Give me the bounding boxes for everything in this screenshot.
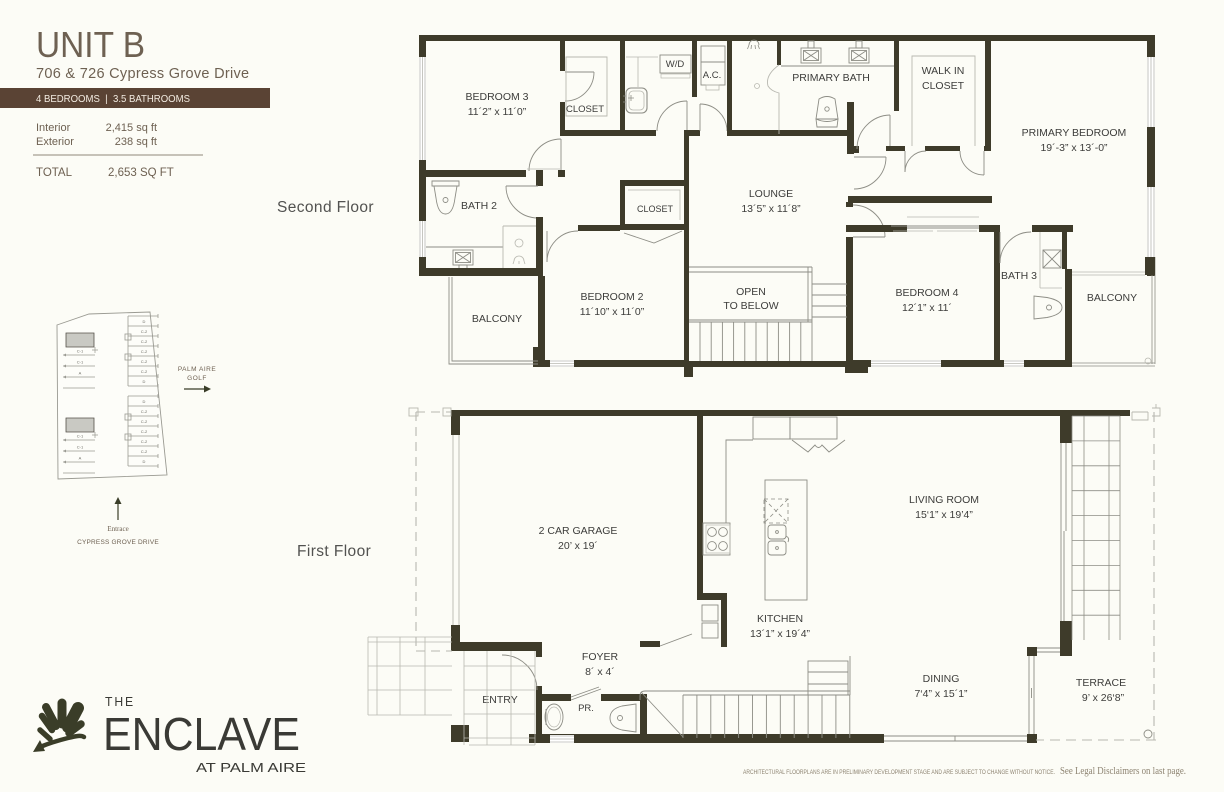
svg-text:PRIMARY BEDROOM: PRIMARY BEDROOM	[1022, 127, 1127, 139]
svg-text:2,415 sq ft: 2,415 sq ft	[106, 122, 157, 134]
svg-text:PALM AIRE: PALM AIRE	[178, 366, 217, 373]
svg-text:BEDROOM 4: BEDROOM 4	[895, 287, 958, 299]
svg-text:Interior: Interior	[36, 122, 71, 134]
svg-text:C-1: C-1	[77, 445, 84, 450]
svg-text:First Floor: First Floor	[297, 543, 371, 560]
svg-text:A: A	[79, 456, 82, 461]
svg-text:THE: THE	[105, 694, 135, 709]
svg-text:D: D	[143, 399, 146, 404]
svg-text:TERRACE: TERRACE	[1076, 677, 1126, 689]
svg-text:C-1: C-1	[77, 349, 84, 354]
svg-text:DINING: DINING	[923, 673, 960, 685]
svg-text:15‘1” x 19’4”: 15‘1” x 19’4”	[915, 509, 973, 521]
svg-text:CLOSET: CLOSET	[922, 80, 965, 92]
svg-text:C-1: C-1	[77, 434, 84, 439]
svg-text:CLOSET: CLOSET	[566, 104, 604, 115]
svg-text:C-2: C-2	[141, 369, 148, 374]
svg-text:20’ x 19´: 20’ x 19´	[558, 540, 598, 552]
svg-text:BATH 2: BATH 2	[461, 200, 497, 212]
svg-text:Exterior: Exterior	[36, 136, 74, 148]
svg-text:11´10” x 11´0”: 11´10” x 11´0”	[580, 306, 645, 318]
svg-text:LIVING ROOM: LIVING ROOM	[909, 494, 979, 506]
svg-text:13´1” x 19´4”: 13´1” x 19´4”	[750, 628, 811, 640]
svg-text:CLOSET: CLOSET	[637, 204, 674, 214]
svg-text:Entrace: Entrace	[107, 525, 128, 533]
svg-text:238 sq ft: 238 sq ft	[115, 136, 157, 148]
svg-text:See Legal Disclaimers on last: See Legal Disclaimers on last page.	[1060, 766, 1186, 777]
svg-text:C-2: C-2	[141, 349, 148, 354]
svg-text:D: D	[143, 459, 146, 464]
svg-text:11´2” x 11´0”: 11´2” x 11´0”	[468, 106, 527, 118]
svg-text:TOTAL: TOTAL	[36, 167, 73, 179]
svg-text:C-2: C-2	[141, 419, 148, 424]
svg-text:C-2: C-2	[141, 439, 148, 444]
svg-text:12´1” x 11´: 12´1” x 11´	[902, 302, 952, 314]
svg-text:BATH 3: BATH 3	[1001, 270, 1037, 282]
svg-text:TO BELOW: TO BELOW	[723, 300, 778, 312]
svg-text:706 & 726 Cypress Grove Drive: 706 & 726 Cypress Grove Drive	[36, 66, 249, 82]
svg-text:D: D	[143, 319, 146, 324]
svg-text:4 BEDROOMS | 3.5 BATHROOMS: 4 BEDROOMS | 3.5 BATHROOMS	[36, 93, 190, 105]
svg-text:ENTRY: ENTRY	[482, 694, 517, 706]
svg-text:BEDROOM 3: BEDROOM 3	[465, 91, 528, 103]
svg-text:BALCONY: BALCONY	[472, 313, 522, 325]
svg-text:PR.: PR.	[578, 703, 594, 714]
svg-text:ARCHITECTURAL FLOORPLANS ARE I: ARCHITECTURAL FLOORPLANS ARE IN PRELIMIN…	[743, 769, 1055, 776]
svg-text:7‘4” x 15´1”: 7‘4” x 15´1”	[914, 688, 968, 700]
svg-text:BALCONY: BALCONY	[1087, 292, 1137, 304]
svg-text:FOYER: FOYER	[582, 651, 619, 663]
svg-text:Second Floor: Second Floor	[277, 199, 374, 216]
svg-text:PRIMARY BATH: PRIMARY BATH	[792, 72, 870, 84]
svg-text:WALK IN: WALK IN	[922, 65, 965, 77]
svg-text:C-1: C-1	[77, 360, 84, 365]
svg-text:A.C.: A.C.	[703, 70, 721, 81]
svg-text:C-2: C-2	[141, 359, 148, 364]
svg-text:2,653 SQ FT: 2,653 SQ FT	[108, 167, 174, 179]
svg-text:LOUNGE: LOUNGE	[749, 188, 793, 200]
svg-text:W/D: W/D	[666, 59, 685, 70]
svg-text:C-2: C-2	[141, 409, 148, 414]
svg-text:8´ x 4´: 8´ x 4´	[585, 666, 615, 678]
svg-text:ENCLAVE: ENCLAVE	[103, 708, 300, 760]
svg-text:2 CAR GARAGE: 2 CAR GARAGE	[539, 525, 618, 537]
svg-text:OPEN: OPEN	[736, 286, 766, 298]
svg-text:KITCHEN: KITCHEN	[757, 613, 803, 625]
svg-text:AT PALM AIRE: AT PALM AIRE	[196, 760, 306, 775]
svg-text:BEDROOM 2: BEDROOM 2	[580, 291, 643, 303]
svg-text:C-2: C-2	[141, 449, 148, 454]
svg-text:13´5” x 11´8”: 13´5” x 11´8”	[741, 203, 801, 215]
svg-text:GOLF: GOLF	[187, 375, 207, 382]
svg-text:CYPRESS GROVE DRIVE: CYPRESS GROVE DRIVE	[77, 539, 159, 546]
svg-text:9’ x 26‘8”: 9’ x 26‘8”	[1082, 692, 1125, 704]
svg-text:UNIT B: UNIT B	[36, 24, 145, 65]
svg-text:A: A	[79, 371, 82, 376]
svg-text:D: D	[143, 379, 146, 384]
svg-text:C-2: C-2	[141, 339, 148, 344]
svg-text:19´-3” x 13´-0”: 19´-3” x 13´-0”	[1040, 142, 1108, 154]
svg-text:C-2: C-2	[141, 429, 148, 434]
svg-text:C-2: C-2	[141, 329, 148, 334]
